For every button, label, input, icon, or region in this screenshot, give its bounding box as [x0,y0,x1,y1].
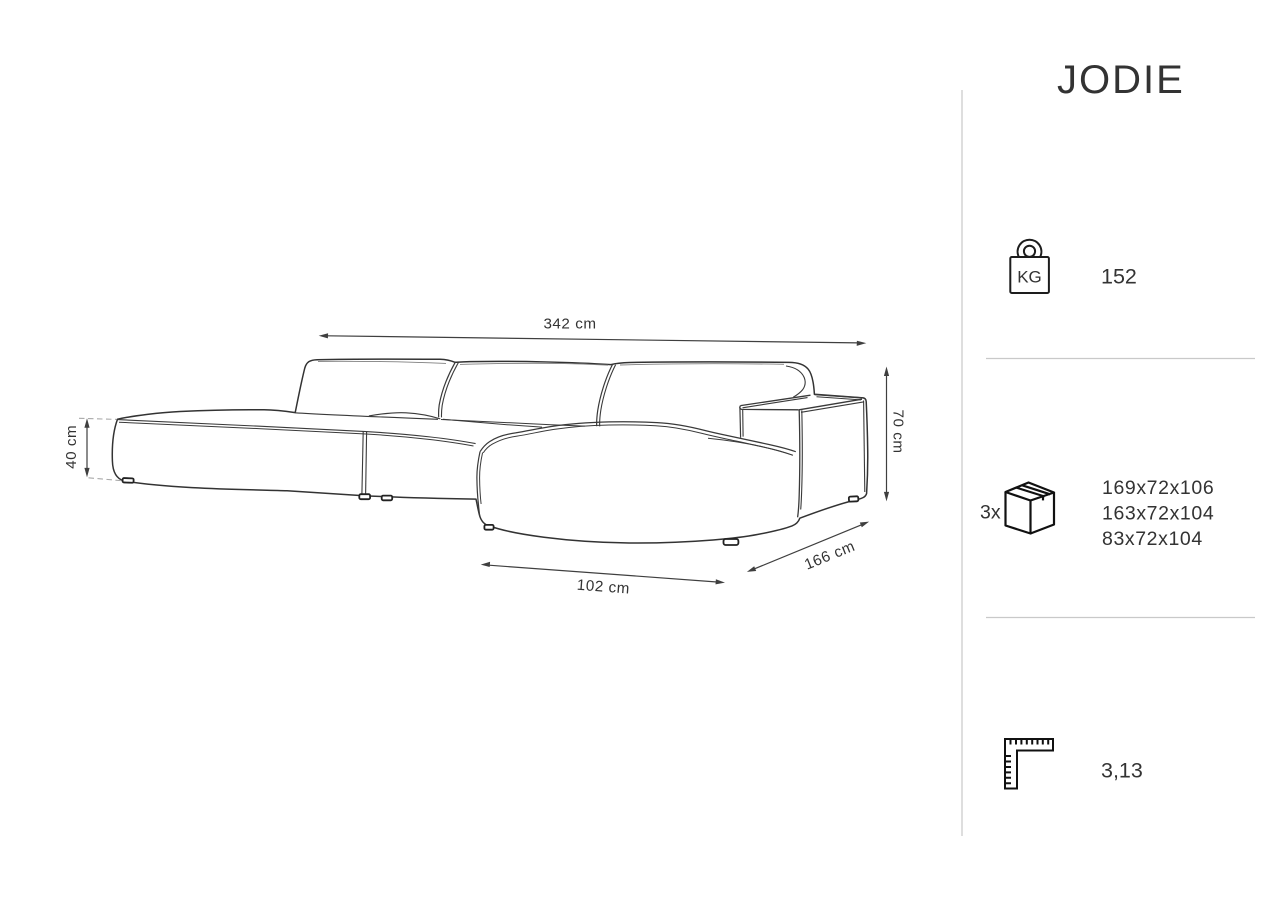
svg-text:3,13: 3,13 [1101,759,1143,783]
svg-text:152: 152 [1101,265,1137,289]
svg-text:342 cm: 342 cm [543,316,596,333]
svg-text:3x: 3x [980,502,1001,524]
svg-text:83x72x104: 83x72x104 [1102,528,1203,550]
svg-text:163x72x104: 163x72x104 [1102,503,1214,525]
svg-text:KG: KG [1017,268,1042,287]
svg-text:70 cm: 70 cm [890,409,907,453]
svg-text:JODIE: JODIE [1057,58,1185,102]
svg-text:169x72x106: 169x72x106 [1102,477,1214,499]
svg-text:40 cm: 40 cm [63,425,80,469]
